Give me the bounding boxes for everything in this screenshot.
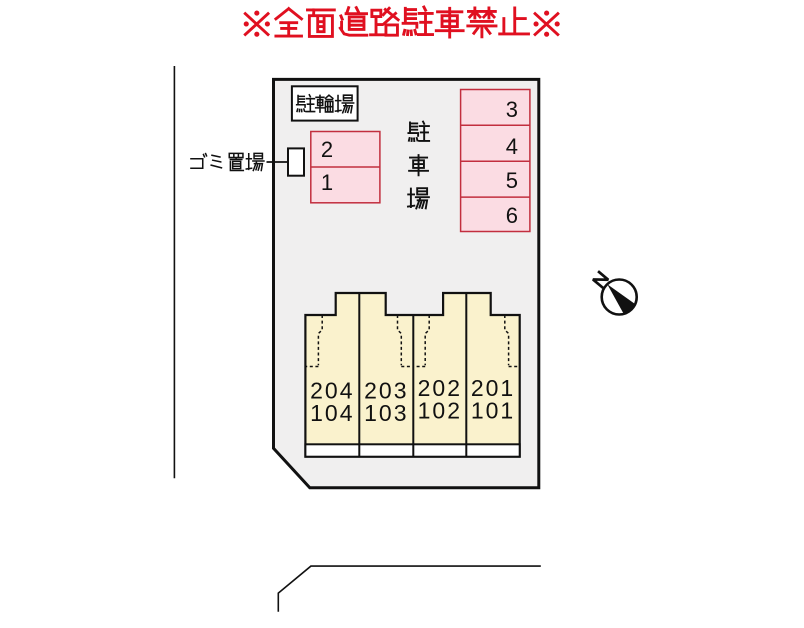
- svg-text:6: 6: [506, 203, 518, 228]
- svg-text:104: 104: [310, 400, 354, 426]
- svg-text:2: 2: [321, 137, 333, 162]
- svg-text:102: 102: [418, 398, 462, 424]
- svg-text:101: 101: [471, 398, 515, 424]
- svg-text:5: 5: [506, 168, 518, 193]
- svg-text:3: 3: [506, 97, 518, 122]
- svg-text:103: 103: [364, 400, 408, 426]
- svg-text:1: 1: [321, 170, 333, 195]
- svg-text:4: 4: [506, 134, 518, 159]
